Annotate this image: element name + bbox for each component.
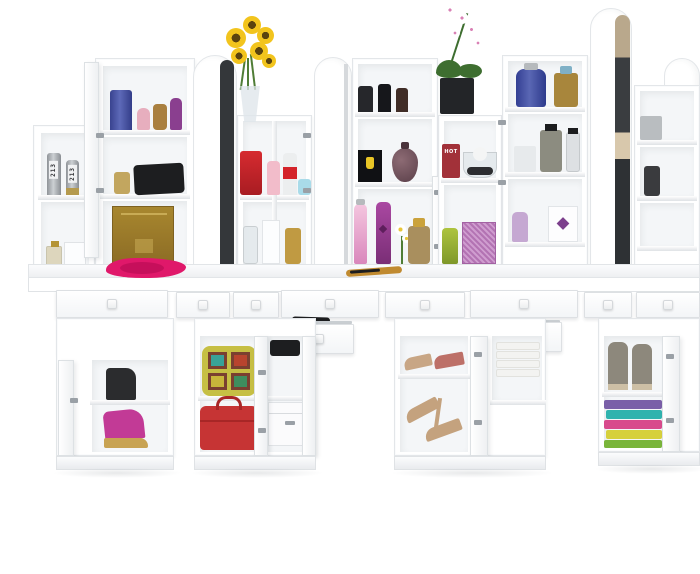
decor-black-stones (467, 167, 493, 175)
wedge-sole (104, 438, 148, 448)
shelf (637, 196, 697, 201)
open-drawer (56, 290, 168, 318)
canister-label: 213 (68, 165, 77, 183)
backpack-patch (208, 352, 227, 369)
grey-boot (608, 342, 628, 390)
shelf (637, 140, 697, 145)
drawer-knob (663, 300, 673, 310)
black-perfume-box (358, 150, 382, 182)
drawer-front (584, 292, 632, 318)
orchid-flower (473, 38, 483, 48)
folded-towel-green (604, 440, 662, 448)
door-hinge (303, 133, 311, 138)
grey-box-small (640, 116, 662, 140)
red-handbag (200, 406, 258, 450)
brown-cosmetic-cylinder (396, 88, 408, 112)
door-hinge (666, 354, 674, 359)
folded-towel-yellow (606, 430, 662, 439)
shelf (355, 182, 435, 187)
purple-pattern-box (462, 222, 496, 264)
flask-cap (524, 63, 538, 70)
drawer-knob (325, 299, 335, 309)
white-towel (496, 369, 540, 377)
folded-towel-teal (606, 410, 662, 419)
frosted-glass-cube (514, 146, 536, 172)
decor-glass-bowl (463, 152, 497, 178)
perfume-bottle-purple-mini (170, 98, 182, 130)
open-cabinet-door (58, 360, 74, 456)
shelf (637, 246, 697, 251)
open-drawer (281, 290, 379, 318)
perfume-box-crest (366, 157, 374, 169)
decor-white-sphere (473, 147, 487, 161)
shelf (441, 178, 499, 183)
perfume-canister-213-right: 213 (66, 160, 79, 195)
shelf (100, 130, 190, 135)
mirror-arch-2 (314, 57, 352, 283)
shelf (602, 392, 668, 397)
drawer-knob (251, 300, 261, 310)
black-clutch-bag (133, 163, 185, 196)
mirror-glass-reflection (615, 15, 630, 282)
gift-box-emblem (135, 239, 153, 253)
bottle-cap (545, 124, 557, 131)
open-drawer (470, 290, 578, 318)
floor-shadow (390, 468, 554, 478)
hot-perfume-box: HOT (442, 144, 460, 178)
perfume-canister-213-left: 213 (47, 153, 61, 195)
backpack-patch (231, 373, 250, 390)
orchid-flower (444, 4, 456, 16)
canister-gold-base (66, 188, 79, 195)
door-hinge (666, 418, 674, 423)
clear-cylinder-bottle (566, 132, 580, 172)
red-canister (240, 151, 262, 195)
folded-towel-purple (604, 400, 662, 409)
spray-cap (356, 199, 365, 205)
floor-shadow (594, 464, 700, 474)
mirror-edge (344, 64, 348, 282)
white-gem-perfume-box (548, 206, 578, 242)
door-hinge (96, 133, 104, 138)
open-cabinet-door (302, 336, 316, 456)
shelf (398, 374, 470, 379)
door-hinge (303, 188, 311, 193)
door-hinge (258, 428, 266, 433)
sunflower (231, 48, 247, 64)
lavender-bottle (512, 212, 528, 242)
open-drawer (636, 292, 700, 318)
drawer-knob (603, 300, 613, 310)
gold-perfume-blue-cap (554, 73, 578, 107)
drawer-front (176, 292, 230, 318)
white-perfume-box (262, 220, 280, 264)
flower-stem (247, 58, 249, 90)
perfume-cap (560, 66, 572, 74)
drawer-knob (107, 299, 117, 309)
purple-spray-bottle (376, 202, 391, 264)
handbag-flap (200, 420, 258, 422)
backpack-patch (208, 373, 227, 390)
gold-jar (114, 172, 130, 194)
shelf (505, 172, 585, 177)
floor-shadow (52, 468, 182, 478)
deodorant-label (283, 167, 297, 179)
patch-inner (234, 376, 247, 387)
pink-scarf-fold (120, 262, 164, 274)
drawer-knob (198, 300, 208, 310)
mirror-arch-3 (590, 8, 632, 283)
door-hinge (70, 398, 78, 403)
open-cabinet-door (254, 336, 268, 456)
shelf (90, 400, 170, 405)
shelf-cavity (640, 203, 694, 246)
orchid-flower (450, 28, 460, 38)
box-metal-handle (285, 421, 295, 425)
shelf (505, 242, 585, 247)
kids-backpack (202, 346, 256, 396)
orchid-flower (456, 12, 468, 24)
drawer-knob (519, 299, 529, 309)
green-cosmetic-tube (442, 228, 458, 264)
hairbrush-bristles (350, 269, 380, 274)
mirror-arch-1 (193, 55, 237, 283)
glass-perfume-bottle (243, 226, 258, 264)
dark-bottle-small (644, 166, 660, 196)
white-towel (496, 342, 540, 350)
perfume-bottle-pink-mini (137, 108, 150, 130)
open-cabinet-door (84, 62, 99, 258)
sunflower (262, 54, 276, 68)
perfume-bottle-amber-mini (153, 104, 167, 130)
hot-box-label: HOT (442, 149, 460, 155)
grey-cologne-bottle (540, 130, 562, 172)
pink-wedge-sandal (103, 408, 146, 442)
gold-perfume-cap (413, 218, 425, 227)
grey-boot (632, 344, 652, 390)
floor-shadow (190, 468, 324, 478)
white-towel (496, 351, 540, 359)
door-hinge (498, 180, 506, 185)
boot-sole (608, 384, 628, 390)
patch-inner (234, 355, 247, 366)
folded-towel-pink (604, 420, 662, 429)
gold-gift-box (112, 206, 174, 264)
white-towel (496, 360, 540, 368)
backpack-patch (231, 352, 250, 369)
black-pouch (270, 340, 300, 356)
mirror-glass (220, 60, 234, 282)
black-cosmetic-cylinder (378, 84, 391, 112)
shelf (505, 107, 585, 112)
gold-perfume-bottle (285, 228, 301, 264)
door-hinge (474, 420, 482, 425)
door-hinge (258, 370, 266, 375)
door-hinge (96, 188, 104, 193)
vanity-product-image: 213 213 (0, 0, 700, 574)
drawer-front (233, 292, 279, 318)
amber-perfume-bottle (408, 226, 430, 264)
black-ankle-boot (106, 368, 136, 400)
handbag-handle (216, 396, 242, 410)
shelf (490, 400, 546, 405)
perfume-cap (51, 241, 59, 247)
drawer-front (385, 292, 465, 318)
shelf (355, 112, 435, 117)
gem-motif (557, 217, 570, 230)
perfume-bottle-navy (110, 90, 132, 130)
patch-inner (211, 355, 224, 366)
heart-motif (379, 225, 387, 233)
blue-flask-bottle (516, 69, 546, 107)
drawer-knob (420, 300, 430, 310)
pink-spray-bottle (354, 204, 367, 264)
patch-inner (211, 376, 224, 387)
deodorant-stick (283, 153, 297, 195)
door-hinge (474, 352, 482, 357)
door-hinge (498, 120, 506, 125)
boot-sole (632, 384, 652, 390)
canister-label: 213 (49, 161, 58, 179)
black-cosmetic-cylinder (358, 86, 373, 112)
orchid-cube-pot (440, 78, 474, 114)
gift-box-band (121, 213, 167, 215)
orchid-flower (466, 24, 477, 35)
sunflower (226, 28, 246, 48)
bottle-cap (568, 128, 578, 134)
pink-cream-tube (267, 161, 280, 195)
orchid-leaf (458, 64, 482, 78)
perfume-cap (401, 142, 409, 149)
